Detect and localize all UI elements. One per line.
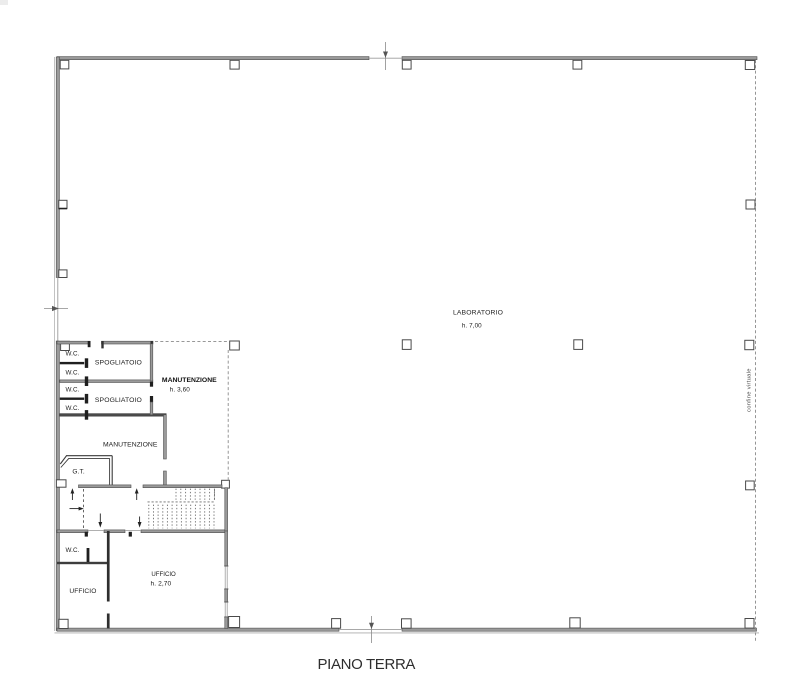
svg-text:UFFICIO: UFFICIO: [151, 571, 176, 578]
svg-text:W.C.: W.C.: [65, 350, 79, 357]
svg-text:h. 7,00: h. 7,00: [462, 322, 482, 329]
svg-text:SPOGLIATOIO: SPOGLIATOIO: [95, 397, 142, 404]
svg-text:LABORATORIO: LABORATORIO: [453, 309, 503, 316]
svg-text:PIANO TERRA: PIANO TERRA: [318, 656, 416, 673]
svg-text:W.C.: W.C.: [65, 369, 79, 376]
svg-text:MANUTENZIONE: MANUTENZIONE: [103, 441, 158, 448]
svg-text:h. 2,70: h. 2,70: [150, 581, 171, 588]
svg-text:MANUTENZIONE: MANUTENZIONE: [162, 377, 217, 384]
svg-text:W.C.: W.C.: [65, 547, 79, 554]
svg-text:UFFICIO: UFFICIO: [69, 588, 96, 595]
svg-text:h. 3,60: h. 3,60: [170, 386, 191, 393]
svg-text:W.C.: W.C.: [65, 387, 79, 394]
svg-text:SPOGLIATOIO: SPOGLIATOIO: [95, 360, 142, 367]
svg-text:G.T.: G.T.: [72, 469, 85, 476]
svg-text:W.C.: W.C.: [65, 405, 79, 412]
svg-text:confine virtuale: confine virtuale: [747, 368, 753, 412]
